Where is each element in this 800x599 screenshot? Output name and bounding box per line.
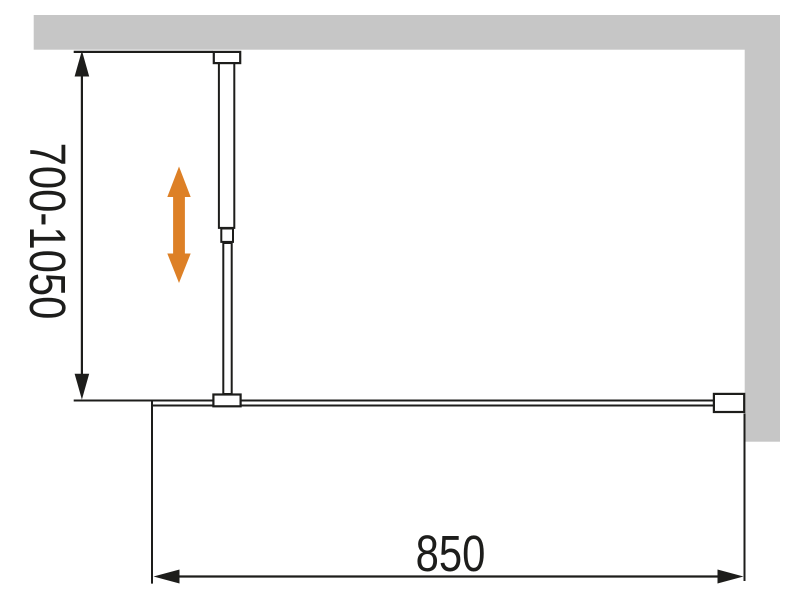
- svg-text:700-1050: 700-1050: [19, 143, 76, 320]
- svg-text:850: 850: [416, 525, 486, 582]
